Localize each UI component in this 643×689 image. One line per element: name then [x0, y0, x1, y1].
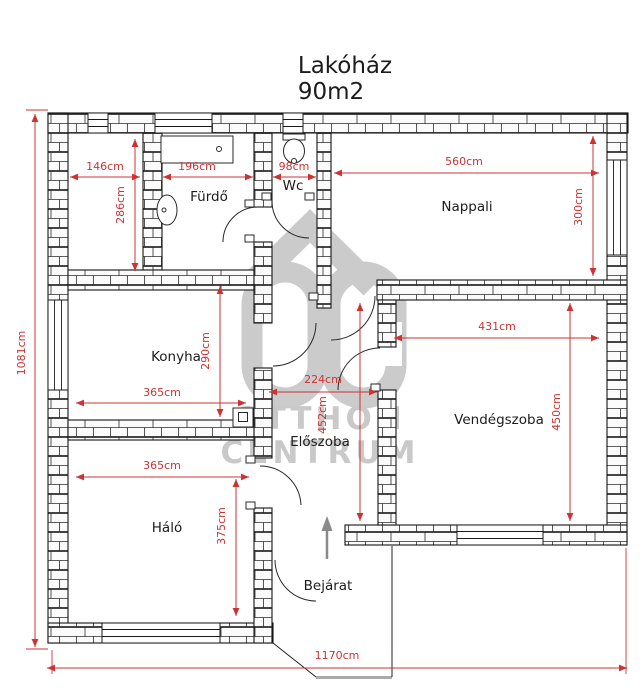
wall-vendeg-left-a — [378, 300, 396, 347]
door-frame-mark — [245, 235, 254, 242]
room-label-eloszoba: Előszoba — [290, 434, 350, 450]
title-area: 90m2 — [298, 79, 364, 105]
wall-konyha-bottom — [68, 420, 254, 440]
window-wc — [283, 113, 303, 133]
halo-door-arc — [260, 466, 301, 505]
plan-title: Lakóház 90m2 — [298, 53, 392, 105]
door-frame-mark — [262, 193, 271, 200]
wall-vendeg-left-b — [378, 390, 396, 525]
porch-diagonal — [273, 643, 316, 677]
door-frame-mark — [305, 193, 314, 200]
room-label-vendegszoba: Vendégszoba — [454, 412, 544, 428]
window-halo — [102, 623, 220, 643]
floorplan-drawing: OTTHON CENTRUM — [0, 0, 643, 689]
room-label-furdo: Fürdő — [190, 189, 228, 205]
floorplan-page: OTTHON CENTRUM — [0, 0, 643, 689]
title-name: Lakóház — [298, 53, 392, 79]
room-label-bejarat: Bejárat — [304, 578, 353, 594]
wall-corridor-left-a — [254, 242, 272, 323]
door-frame-mark — [245, 200, 254, 207]
dim-label-450: 450cm — [550, 393, 563, 431]
dim-label-146: 146cm — [86, 160, 124, 173]
dim-label-1081: 1081cm — [15, 331, 28, 376]
dim-label-224: 224cm — [304, 373, 342, 386]
door-frame-mark — [371, 384, 380, 391]
window-storage — [88, 113, 108, 133]
door-frame-mark — [309, 293, 318, 300]
wall-top — [48, 113, 628, 133]
dim-label-290: 290cm — [199, 332, 212, 370]
room-label-nappali: Nappali — [441, 199, 492, 215]
wall-wc-nappali — [317, 133, 331, 308]
window-furdo — [155, 113, 212, 133]
window-konyha — [48, 300, 68, 390]
wall-corridor-left-b — [254, 368, 272, 458]
door-frame-mark — [246, 456, 255, 463]
dim-label-1170: 1170cm — [315, 649, 360, 662]
bathtub-icon — [161, 136, 233, 163]
dim-label-431: 431cm — [478, 320, 516, 333]
room-label-halo: Háló — [152, 520, 182, 536]
door-frame-mark — [246, 502, 255, 509]
dim-label-300: 300cm — [572, 188, 585, 226]
dim-label-196: 196cm — [178, 160, 216, 173]
room-label-wc: Wc — [283, 178, 304, 194]
room-label-konyha: Konyha — [151, 349, 201, 365]
dim-label-365h: 365cm — [143, 459, 181, 472]
entry-arrow-icon — [322, 516, 333, 559]
dim-label-286: 286cm — [114, 186, 127, 224]
dim-label-560: 560cm — [445, 155, 483, 168]
chimney-icon — [233, 408, 253, 427]
dim-label-98: 98cm — [279, 160, 310, 173]
dim-label-375: 375cm — [215, 507, 228, 545]
wall-nappali-bottom — [377, 280, 627, 300]
wall-hall-left-lower — [254, 508, 272, 643]
sink-icon — [157, 195, 177, 225]
window-vendegszoba — [457, 525, 543, 545]
wall-below-storage — [68, 270, 254, 290]
window-nappali — [607, 160, 627, 255]
dim-label-365k: 365cm — [143, 386, 181, 399]
dim-label-452: 452cm — [316, 396, 329, 434]
